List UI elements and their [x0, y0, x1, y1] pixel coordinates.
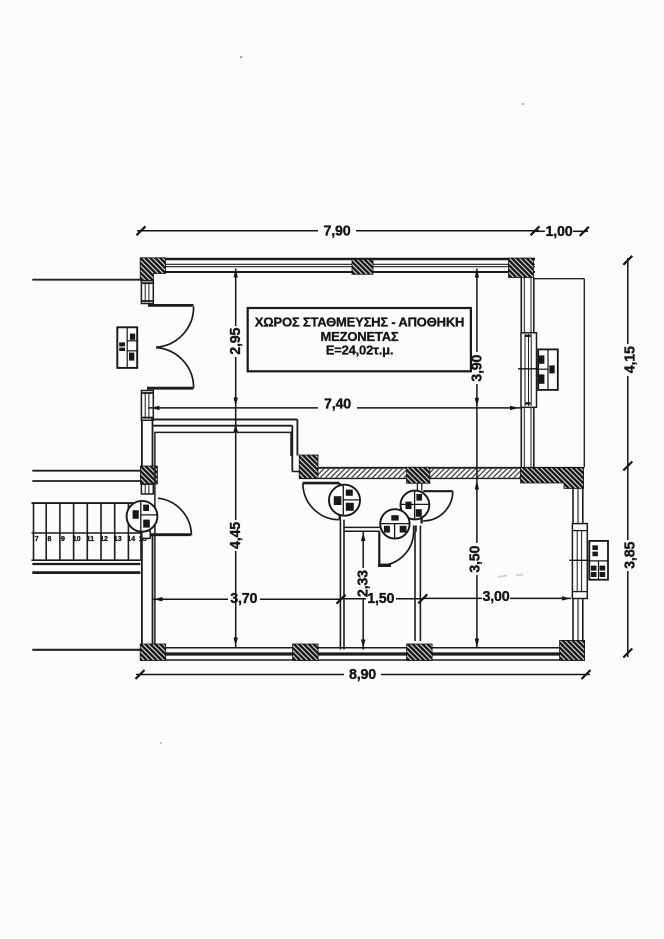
svg-text:14: 14	[127, 536, 135, 543]
svg-text:8: 8	[48, 536, 52, 543]
svg-text:4,45: 4,45	[228, 522, 244, 549]
svg-text:7: 7	[35, 536, 39, 543]
svg-text:1,00: 1,00	[545, 224, 572, 240]
svg-text:7,40: 7,40	[324, 396, 351, 412]
svg-text:3,50: 3,50	[467, 545, 483, 572]
svg-text:2,33: 2,33	[356, 570, 372, 597]
svg-text:Ε=24,02τ.μ.: Ε=24,02τ.μ.	[326, 342, 394, 357]
svg-text:11: 11	[87, 536, 95, 543]
svg-text:3,85: 3,85	[623, 542, 639, 569]
svg-text:8,90: 8,90	[349, 667, 376, 683]
svg-text:12: 12	[100, 536, 108, 543]
svg-text:3,70: 3,70	[230, 591, 257, 607]
svg-text:ΧΩΡΟΣ ΣΤΑΘΜΕΥΣΗΣ - ΑΠΟΘΗΚΗ: ΧΩΡΟΣ ΣΤΑΘΜΕΥΣΗΣ - ΑΠΟΘΗΚΗ	[255, 315, 464, 330]
svg-text:13: 13	[114, 536, 122, 543]
svg-text:3,00: 3,00	[482, 589, 509, 605]
svg-text:7,90: 7,90	[323, 224, 350, 240]
svg-text:4,15: 4,15	[623, 346, 639, 373]
svg-text:3,90: 3,90	[469, 354, 485, 381]
svg-text:2,95: 2,95	[228, 327, 244, 354]
svg-text:9: 9	[61, 536, 65, 543]
svg-text:10: 10	[73, 536, 81, 543]
